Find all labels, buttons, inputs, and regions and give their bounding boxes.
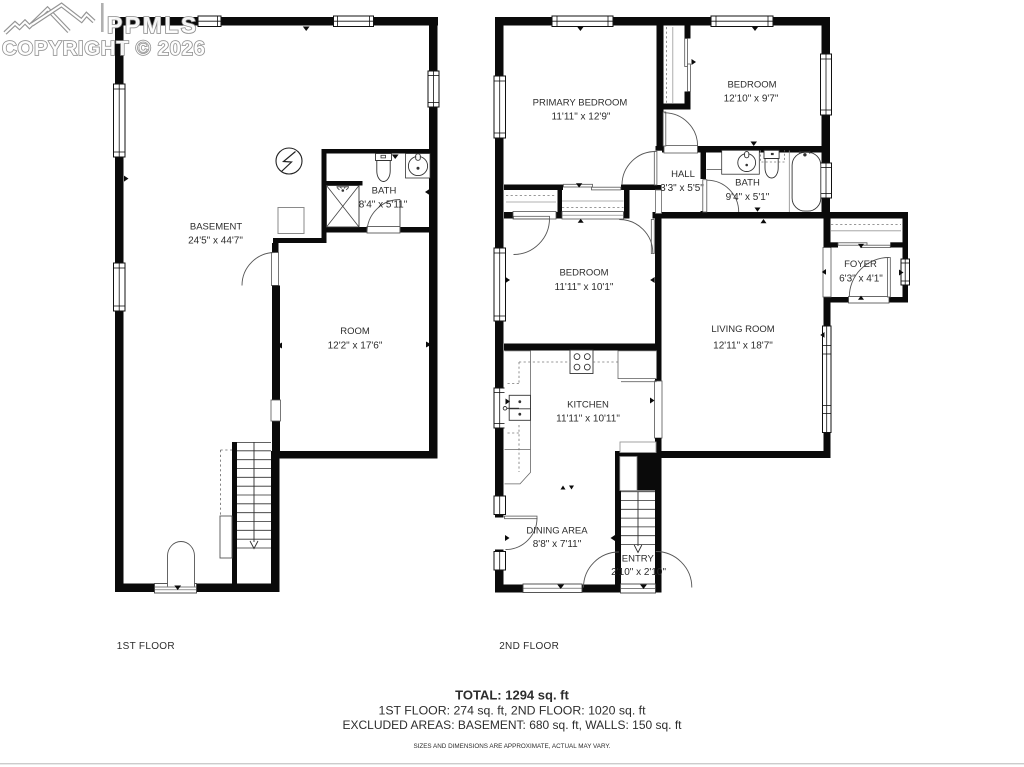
svg-text:2ND FLOOR: 2ND FLOOR (499, 641, 559, 652)
svg-text:BEDROOM: BEDROOM (559, 268, 608, 279)
svg-text:BASEMENT: BASEMENT (190, 222, 242, 233)
svg-text:2'10" x 2'10": 2'10" x 2'10" (611, 567, 666, 578)
svg-text:BATH: BATH (372, 186, 397, 197)
svg-text:SIZES AND DIMENSIONS ARE APPRO: SIZES AND DIMENSIONS ARE APPROXIMATE, AC… (413, 743, 610, 750)
svg-text:BEDROOM: BEDROOM (727, 80, 776, 91)
svg-text:BATH: BATH (735, 178, 760, 189)
svg-text:11'11" x 12'9": 11'11" x 12'9" (552, 112, 611, 123)
svg-text:FOYER: FOYER (844, 259, 877, 270)
svg-text:PPMLS: PPMLS (107, 12, 199, 38)
svg-text:1ST FLOOR: 274 sq. ft, 2ND FLO: 1ST FLOOR: 274 sq. ft, 2ND FLOOR: 1020 s… (379, 704, 647, 718)
svg-text:8'8" x 7'11": 8'8" x 7'11" (533, 539, 582, 550)
svg-text:12'2" x 17'6": 12'2" x 17'6" (328, 341, 383, 352)
svg-text:HALL: HALL (671, 169, 695, 180)
svg-text:3'3" x 5'5": 3'3" x 5'5" (660, 183, 704, 194)
svg-text:COPYRIGHT © 2026: COPYRIGHT © 2026 (2, 37, 206, 60)
svg-text:LIVING ROOM: LIVING ROOM (711, 324, 774, 335)
svg-text:6'3" x 4'1": 6'3" x 4'1" (839, 274, 883, 285)
svg-text:TOTAL: 1294 sq. ft: TOTAL: 1294 sq. ft (455, 688, 569, 703)
svg-text:PRIMARY BEDROOM: PRIMARY BEDROOM (533, 98, 628, 109)
svg-text:KITCHEN: KITCHEN (567, 400, 609, 411)
svg-text:24'5" x 44'7": 24'5" x 44'7" (188, 236, 243, 247)
svg-text:ENTRY: ENTRY (622, 554, 655, 565)
svg-text:12'11" x 18'7": 12'11" x 18'7" (713, 341, 773, 352)
svg-text:12'10" x 9'7": 12'10" x 9'7" (724, 94, 779, 105)
svg-text:DINING AREA: DINING AREA (526, 526, 588, 537)
svg-text:8'4" x 5'11": 8'4" x 5'11" (359, 200, 408, 211)
svg-text:1ST FLOOR: 1ST FLOOR (117, 641, 175, 652)
svg-text:11'11" x 10'1": 11'11" x 10'1" (555, 282, 614, 293)
svg-text:EXCLUDED AREAS: BASEMENT: 680: EXCLUDED AREAS: BASEMENT: 680 sq. ft, WA… (342, 718, 682, 732)
svg-text:11'11" x 10'11": 11'11" x 10'11" (556, 414, 620, 425)
svg-text:ROOM: ROOM (340, 326, 370, 337)
svg-text:9'4" x 5'1": 9'4" x 5'1" (726, 192, 770, 203)
